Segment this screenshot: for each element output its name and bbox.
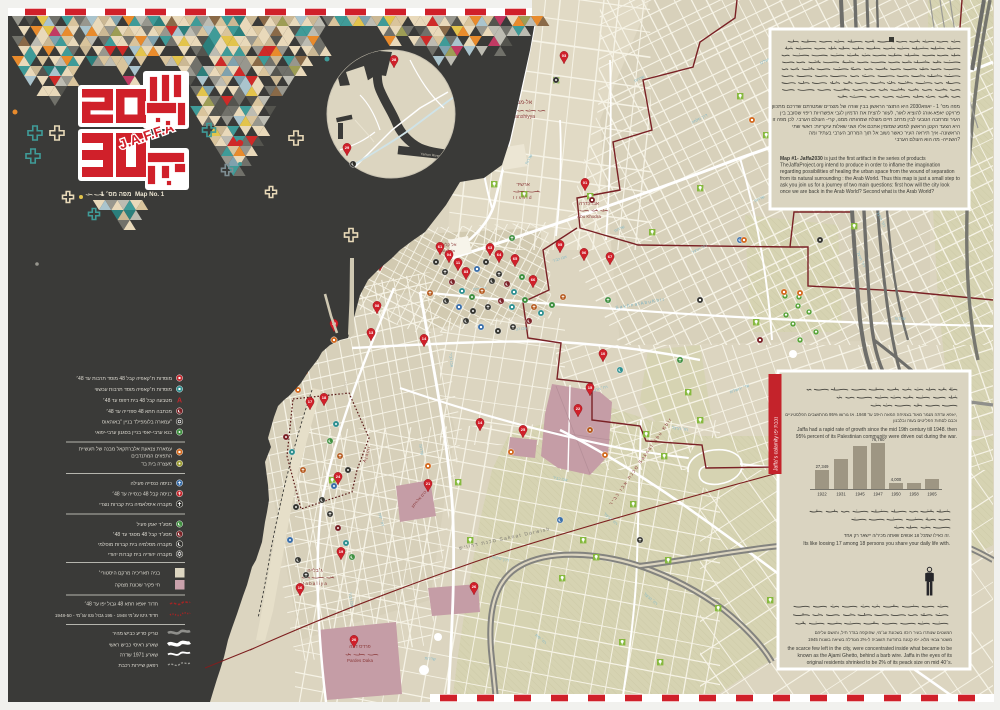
svg-text:08: 08 [375,303,380,308]
svg-text:1965: 1965 [927,492,937,497]
svg-text:מקברה איסלאמיה בית קברות נוצרי: מקברה איסלאמיה בית קברות נוצרי [99,501,172,508]
svg-text:Its like loosing 17 among 18 p: Its like loosing 17 among 18 persons you… [803,541,950,547]
svg-text:the scarce few left in the cit: the scarce few left in the city, were co… [788,646,953,652]
svg-text:מכתבה חתא 48 ספרייה עד 48׳: מכתבה חתא 48 ספרייה עד 48׳ [106,408,172,415]
svg-text:Pardes Daka: Pardes Daka [347,658,374,663]
svg-text:14: 14 [422,336,427,341]
svg-text:01: 01 [583,180,588,185]
svg-text:24: 24 [336,474,341,479]
svg-text:05: 05 [558,242,563,247]
svg-text:known as the Ajami Ghetto, beh: known as the Ajami Ghetto, behind a barb… [798,653,953,659]
svg-text:ג׳בלייה: ג׳בלייה [307,567,322,574]
svg-text:from its natural surrounding :: from its natural surrounding : the Arab … [780,176,960,182]
svg-text:once we are back in the Arab W: once we are back in the Arab World? Seco… [780,189,934,195]
svg-text:מסג׳ד קבל 48 מסגד עד 48׳: מסג׳ד קבל 48 מסגד עד 48׳ [113,531,173,538]
svg-text:חדוד גיטו עג׳מי 1948 - 195 גבו: חדוד גיטו עג׳מי 1948 - 195 גבול גטו עג׳מ… [55,613,158,618]
svg-text:המעטים שנותרו בעיר רוכזו בשכונ: המעטים שנותרו בעיר רוכזו בשכונת עג׳מי, ש… [815,630,953,635]
svg-text:מטבעה קבל 48 בית דפוס עד 48׳: מטבעה קבל 48 בית דפוס עד 48׳ [103,397,173,404]
svg-text:מפה מס׳ 1: מפה מס׳ 1 [101,191,132,198]
svg-text:18: 18 [322,395,327,400]
svg-text:63: 63 [488,245,493,250]
svg-text:26: 26 [472,584,477,589]
svg-text:העיר ומרחבה הטבעי לבין מרחב חי: העיר ומרחבה הטבעי לבין מרחב חיים מוצלח ש… [773,116,961,123]
svg-text:22: 22 [576,406,581,411]
svg-text:זה כאילו שמכל 18 אנשים שאתה מכ: זה כאילו שמכל 18 אנשים שאתה מכיר/ה יישאר… [844,533,950,538]
svg-text:14: 14 [478,420,483,425]
svg-text:מקברה יהודיה בית קברות יהודי: מקברה יהודיה בית קברות יהודי [108,552,173,558]
svg-text:Irshid: Irshid [513,195,533,200]
svg-text:השנייה- מה הוא העולם הערבי?: השנייה- מה הוא העולם הערבי? [895,136,960,143]
svg-text:regarding possibilities of hea: regarding possibilities of healing the u… [780,169,955,175]
svg-text:שדרות: שדרות [424,656,436,662]
svg-text:20: 20 [352,637,357,642]
svg-text:19: 19 [339,549,344,554]
svg-text:16: 16 [298,585,303,590]
svg-text:פרויקט יאפא-אורג להוציא לאור,: פרויקט יאפא-אורג להוציא לאור, לעזור להצי… [780,110,960,117]
svg-text:מפה מס׳ 1 - יאפא2030 היא התוצר: מפה מס׳ 1 - יאפא2030 היא התוצר הראשון בב… [772,103,961,110]
svg-text:1931: 1931 [836,492,846,497]
svg-text:27,349: 27,349 [816,464,829,469]
svg-text:76,760: 76,760 [872,437,885,442]
svg-text:61: 61 [438,244,443,249]
svg-text:A: A [177,398,182,405]
svg-text:67: 67 [608,254,613,259]
svg-text:Jabaliya: Jabaliya [302,581,328,586]
svg-text:65: 65 [513,256,518,261]
svg-text:משטר צבאי מלא. יפו קטנה בתודעת: משטר צבאי מלא. יפו קטנה בתודעת תושביה ל-… [808,637,952,642]
svg-text:Map No. 1: Map No. 1 [135,191,165,198]
svg-text:04: 04 [447,252,452,257]
svg-text:כניסה כנסייה פעילה: כניסה כנסייה פעילה [131,480,173,487]
svg-text:היא הצעד הקטן הראשון למסע שמזמ: היא הצעד הקטן הראשון למסע שמזמין אתכם אל… [792,123,960,130]
svg-text:Jaffa׳s calamity נכבת יפו: Jaffa׳s calamity נכבת יפו [773,417,780,471]
svg-text:83: 83 [464,269,469,274]
svg-text:יאפא עדתה מנמר מאוד בצמיחה המא: יאפא עדתה מנמר מאוד בצמיחה המאה ה-19 עד … [785,412,957,417]
svg-text:1950: 1950 [891,492,901,497]
svg-text:1947: 1947 [873,492,883,497]
svg-text:שארע 1971 שדרה: שארע 1971 שדרה [120,653,159,659]
svg-text:מקברה מסלמיה בית קברות מוסלמי: מקברה מסלמיה בית קברות מוסלמי [98,541,173,548]
svg-text:Jaffa had a rapid rate of grow: Jaffa had a rapid rate of growth since t… [797,427,957,433]
svg-text:10: 10 [601,351,606,356]
svg-text:1922: 1922 [817,492,827,497]
svg-text:original residents shrinked to: original residents shrinked to be 2% of … [807,659,952,666]
svg-text:הראשונה- איך תיראה העיר כאשר נ: הראשונה- איך תיראה העיר כאשר נשוב אל תוך… [809,129,960,136]
svg-text:מעצרה בית בד: מעצרה בית בד [141,461,172,467]
svg-text:שארע ראיסי כביש ראשי: שארע ראיסי כביש ראשי [109,643,159,649]
svg-text:Abu Khudra: Abu Khudra [577,214,601,219]
svg-text:Map #1- Jaffa2030 is just the: Map #1- Jaffa2030 is just the first arti… [780,156,926,162]
svg-text:28: 28 [392,57,397,62]
svg-text:מוסדות ת׳קאפיה מוסד תרבות עכשו: מוסדות ת׳קאפיה מוסד תרבות עכשווי [95,386,173,393]
svg-text:בניה תאריכיה מרקם היסטורי׳: בניה תאריכיה מרקם היסטורי׳ [99,570,160,577]
svg-text:1945: 1945 [855,492,865,497]
svg-text:עמארה בלומפילד בניין "באוהאוס": עמארה בלומפילד בניין "באוהאוס" [102,418,172,425]
svg-text:25: 25 [521,427,526,432]
svg-text:התפוזים המתנדבים: התפוזים המתנדבים [131,453,172,459]
svg-text:בנא ערבי-יאפי בניין בסגנון ערב: בנא ערבי-יאפי בניין בסגנון ערבי-יפואי [95,430,172,436]
svg-text:מוסדות ת׳קאפיה קבל 48 מוסד תרב: מוסדות ת׳קאפיה קבל 48 מוסד תרבות עד 48׳ [76,375,172,382]
svg-text:TheJaffaProject.org intend to: TheJaffaProject.org intend to produce in… [780,163,941,169]
svg-text:ask you join us for a journey: ask you join us for a journey of two mai… [780,182,950,188]
svg-text:כניסה קבל 48 כנסייה עד 48׳: כניסה קבל 48 כנסייה עד 48׳ [112,490,172,497]
svg-text:66: 66 [531,277,536,282]
svg-text:ארשיד: ארשיד [516,182,530,188]
svg-text:06: 06 [582,250,587,255]
svg-text:17: 17 [308,399,313,404]
svg-text:רפאק שיירות רכבת: רפאק שיירות רכבת [118,663,158,669]
svg-text:15: 15 [588,385,593,390]
svg-text:64: 64 [497,252,502,257]
svg-text:חדוד יאפא חתא 48 גבול יפו עד 4: חדוד יאפא חתא 48 גבול יפו עד 48׳ [84,601,158,608]
svg-text:29: 29 [345,145,350,150]
svg-text:4,000: 4,000 [891,477,902,482]
svg-text:1958: 1958 [909,492,919,497]
svg-text:שדרות: שדרות [894,316,905,321]
svg-text:חי פקיר שכונת מצוקה: חי פקיר שכונת מצוקה [115,583,160,589]
svg-text:03: 03 [562,53,567,58]
svg-text:עמארת צנאעת אלברתקאל מבנה של ת: עמארת צנאעת אלברתקאל מבנה של תעשיית [79,445,172,452]
svg-text:13: 13 [369,330,374,335]
svg-text:וכבם לםחות הפליטים בעזה ובלבנו: וכבם לםחות הפליטים בעזה ובלבנון [893,418,957,423]
svg-text:מסג׳ד יאמן פעיל: מסג׳ד יאמן פעיל [137,521,173,528]
svg-text:טריק סריע כביש מהיר: טריק סריע כביש מהיר [112,631,158,637]
svg-text:21: 21 [426,481,431,486]
